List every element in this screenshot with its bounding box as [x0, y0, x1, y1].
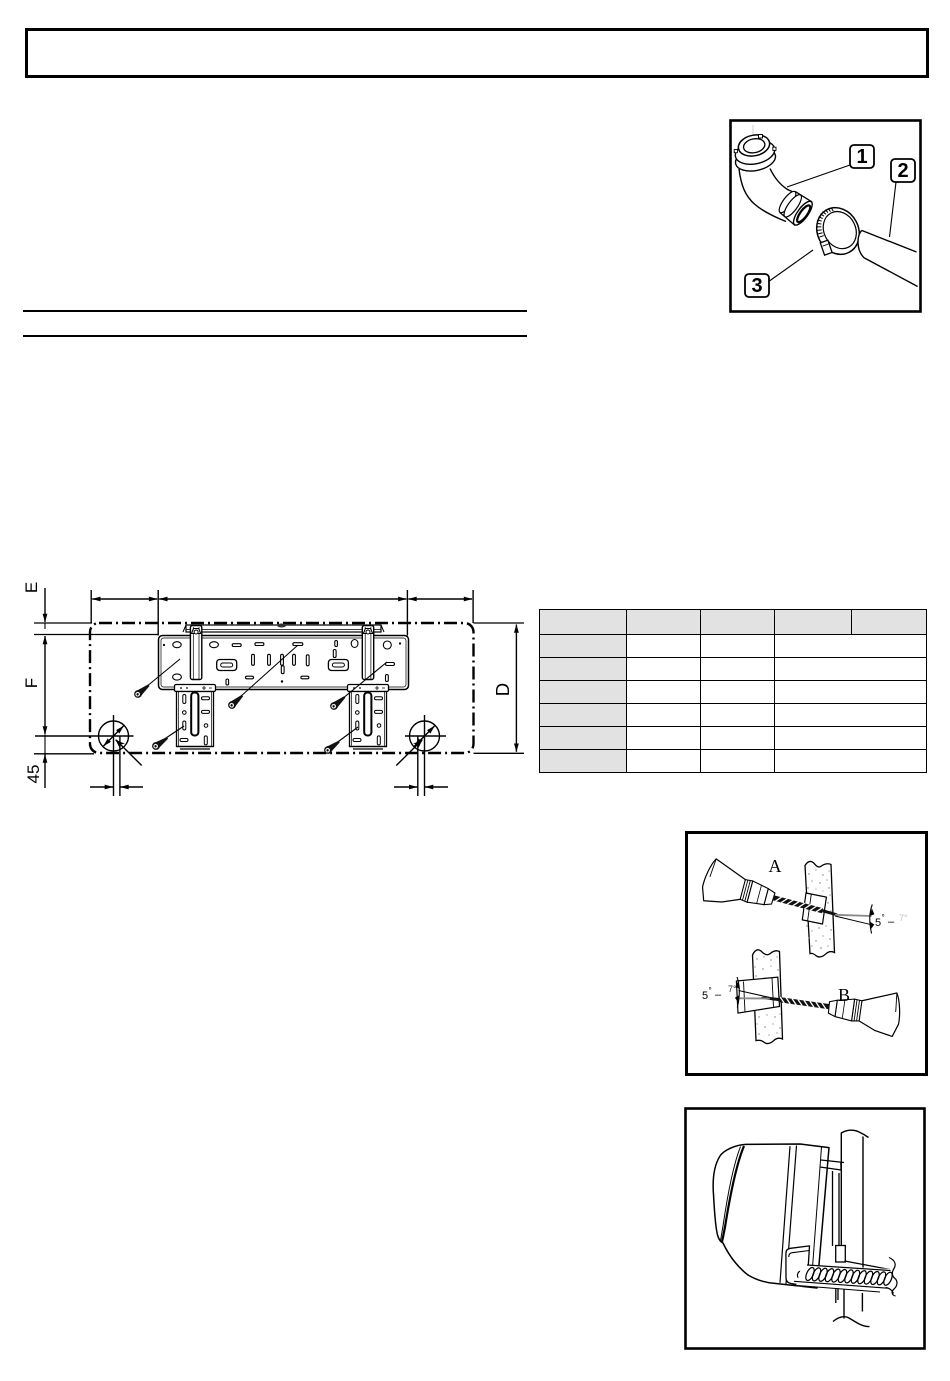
svg-text:E: E: [22, 582, 41, 593]
svg-text:7°: 7°: [899, 913, 908, 923]
svg-text:2: 2: [897, 160, 908, 182]
svg-text:45: 45: [24, 765, 43, 784]
svg-text:5: 5: [875, 917, 881, 929]
svg-text:F: F: [22, 678, 41, 688]
svg-text:–: –: [715, 989, 722, 1001]
svg-text:°: °: [882, 913, 885, 922]
svg-text:7°: 7°: [728, 984, 737, 994]
svg-text:1: 1: [856, 146, 867, 168]
svg-text:3: 3: [751, 275, 762, 297]
svg-text:5: 5: [702, 990, 708, 1002]
svg-text:B: B: [838, 985, 850, 1005]
svg-text:°: °: [709, 986, 712, 995]
svg-text:D: D: [492, 683, 513, 696]
svg-text:–: –: [888, 916, 895, 928]
svg-text:A: A: [769, 856, 782, 876]
